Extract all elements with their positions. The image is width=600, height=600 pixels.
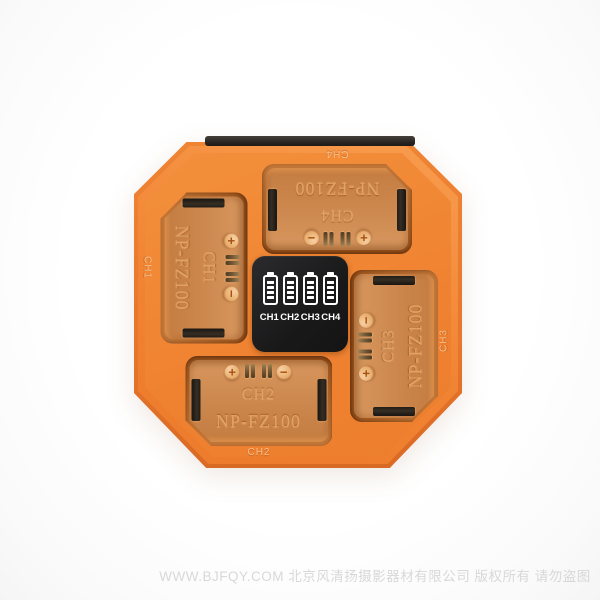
slot-battery-model: NP-FZ100: [185, 408, 332, 434]
battery-icons-row: [263, 272, 338, 305]
slot-engraving: CH1 NP-FZ100: [169, 192, 221, 343]
slot-engraving: CH2 NP-FZ100: [185, 382, 332, 434]
battery-slot-ch1: + − CH1 NP-FZ100: [160, 192, 247, 343]
plus-symbol: +: [225, 236, 238, 244]
status-display: CH1CH2CH3CH4: [252, 256, 348, 352]
slot-channel-label: CH2: [185, 382, 332, 408]
minus-symbol: −: [360, 316, 373, 324]
rim-channel-label-ch1: CH1: [142, 250, 153, 286]
display-labels-row: CH1CH2CH3CH4: [260, 312, 341, 323]
slot-channel-label: CH3: [376, 270, 402, 422]
battery-level-icon: [303, 272, 318, 305]
polarity-minus-icon: −: [223, 286, 238, 301]
polarity-plus-icon: +: [359, 366, 374, 381]
plus-symbol: +: [360, 370, 373, 378]
display-channel-label: CH2: [280, 312, 299, 323]
battery-slot-ch4: + − CH4 NP-FZ100: [262, 164, 412, 254]
slot-channel-label: CH4: [262, 202, 412, 228]
battery-slot-ch2: + − CH2 NP-FZ100: [185, 356, 332, 446]
slot-battery-model: NP-FZ100: [402, 270, 428, 422]
display-channel-label: CH1: [260, 312, 279, 323]
slot-channel-label: CH1: [195, 192, 221, 343]
battery-level-icon: [323, 272, 338, 305]
minus-symbol: −: [225, 289, 238, 297]
slot-engraving: CH3 NP-FZ100: [376, 270, 428, 422]
battery-charger: CH4 CH1 CH3 CH2 + − CH1 NP-FZ100 +: [134, 142, 462, 468]
battery-level-icon: [263, 272, 278, 305]
rim-channel-label-ch3: CH3: [439, 323, 450, 359]
battery-level-icon: [283, 272, 298, 305]
plus-symbol: +: [228, 366, 236, 379]
polarity-minus-icon: −: [304, 230, 319, 245]
rim-channel-label-ch4: CH4: [319, 148, 355, 159]
slot-battery-model: NP-FZ100: [169, 192, 195, 343]
polarity-plus-icon: +: [223, 233, 238, 248]
polarity-plus-icon: +: [225, 365, 240, 380]
polarity-minus-icon: −: [359, 313, 374, 328]
display-channel-label: CH4: [321, 312, 340, 323]
display-channel-label: CH3: [301, 312, 320, 323]
minus-symbol: −: [308, 232, 316, 245]
plus-symbol: +: [360, 232, 368, 245]
charger-back-edge: [205, 136, 415, 146]
charging-contacts-icon: [324, 232, 351, 246]
charging-contacts-icon: [358, 333, 372, 360]
slot-content: + − CH2 NP-FZ100: [185, 356, 332, 446]
minus-symbol: −: [280, 366, 288, 379]
charging-contacts-icon: [225, 254, 239, 281]
slot-content: + − CH4 NP-FZ100: [262, 164, 412, 254]
battery-slot-ch3: + − CH3 NP-FZ100: [350, 270, 438, 422]
watermark-text: WWW.BJFQY.COM 北京风清扬摄影器材有限公司 版权所有 请勿盗图: [150, 565, 600, 585]
rim-channel-label-ch2: CH2: [241, 447, 277, 458]
charging-contacts-icon: [245, 364, 272, 378]
slot-content: + − CH3 NP-FZ100: [350, 270, 438, 422]
slot-battery-model: NP-FZ100: [262, 176, 412, 202]
slot-content: + − CH1 NP-FZ100: [160, 192, 247, 343]
slot-engraving: CH4 NP-FZ100: [262, 176, 412, 228]
